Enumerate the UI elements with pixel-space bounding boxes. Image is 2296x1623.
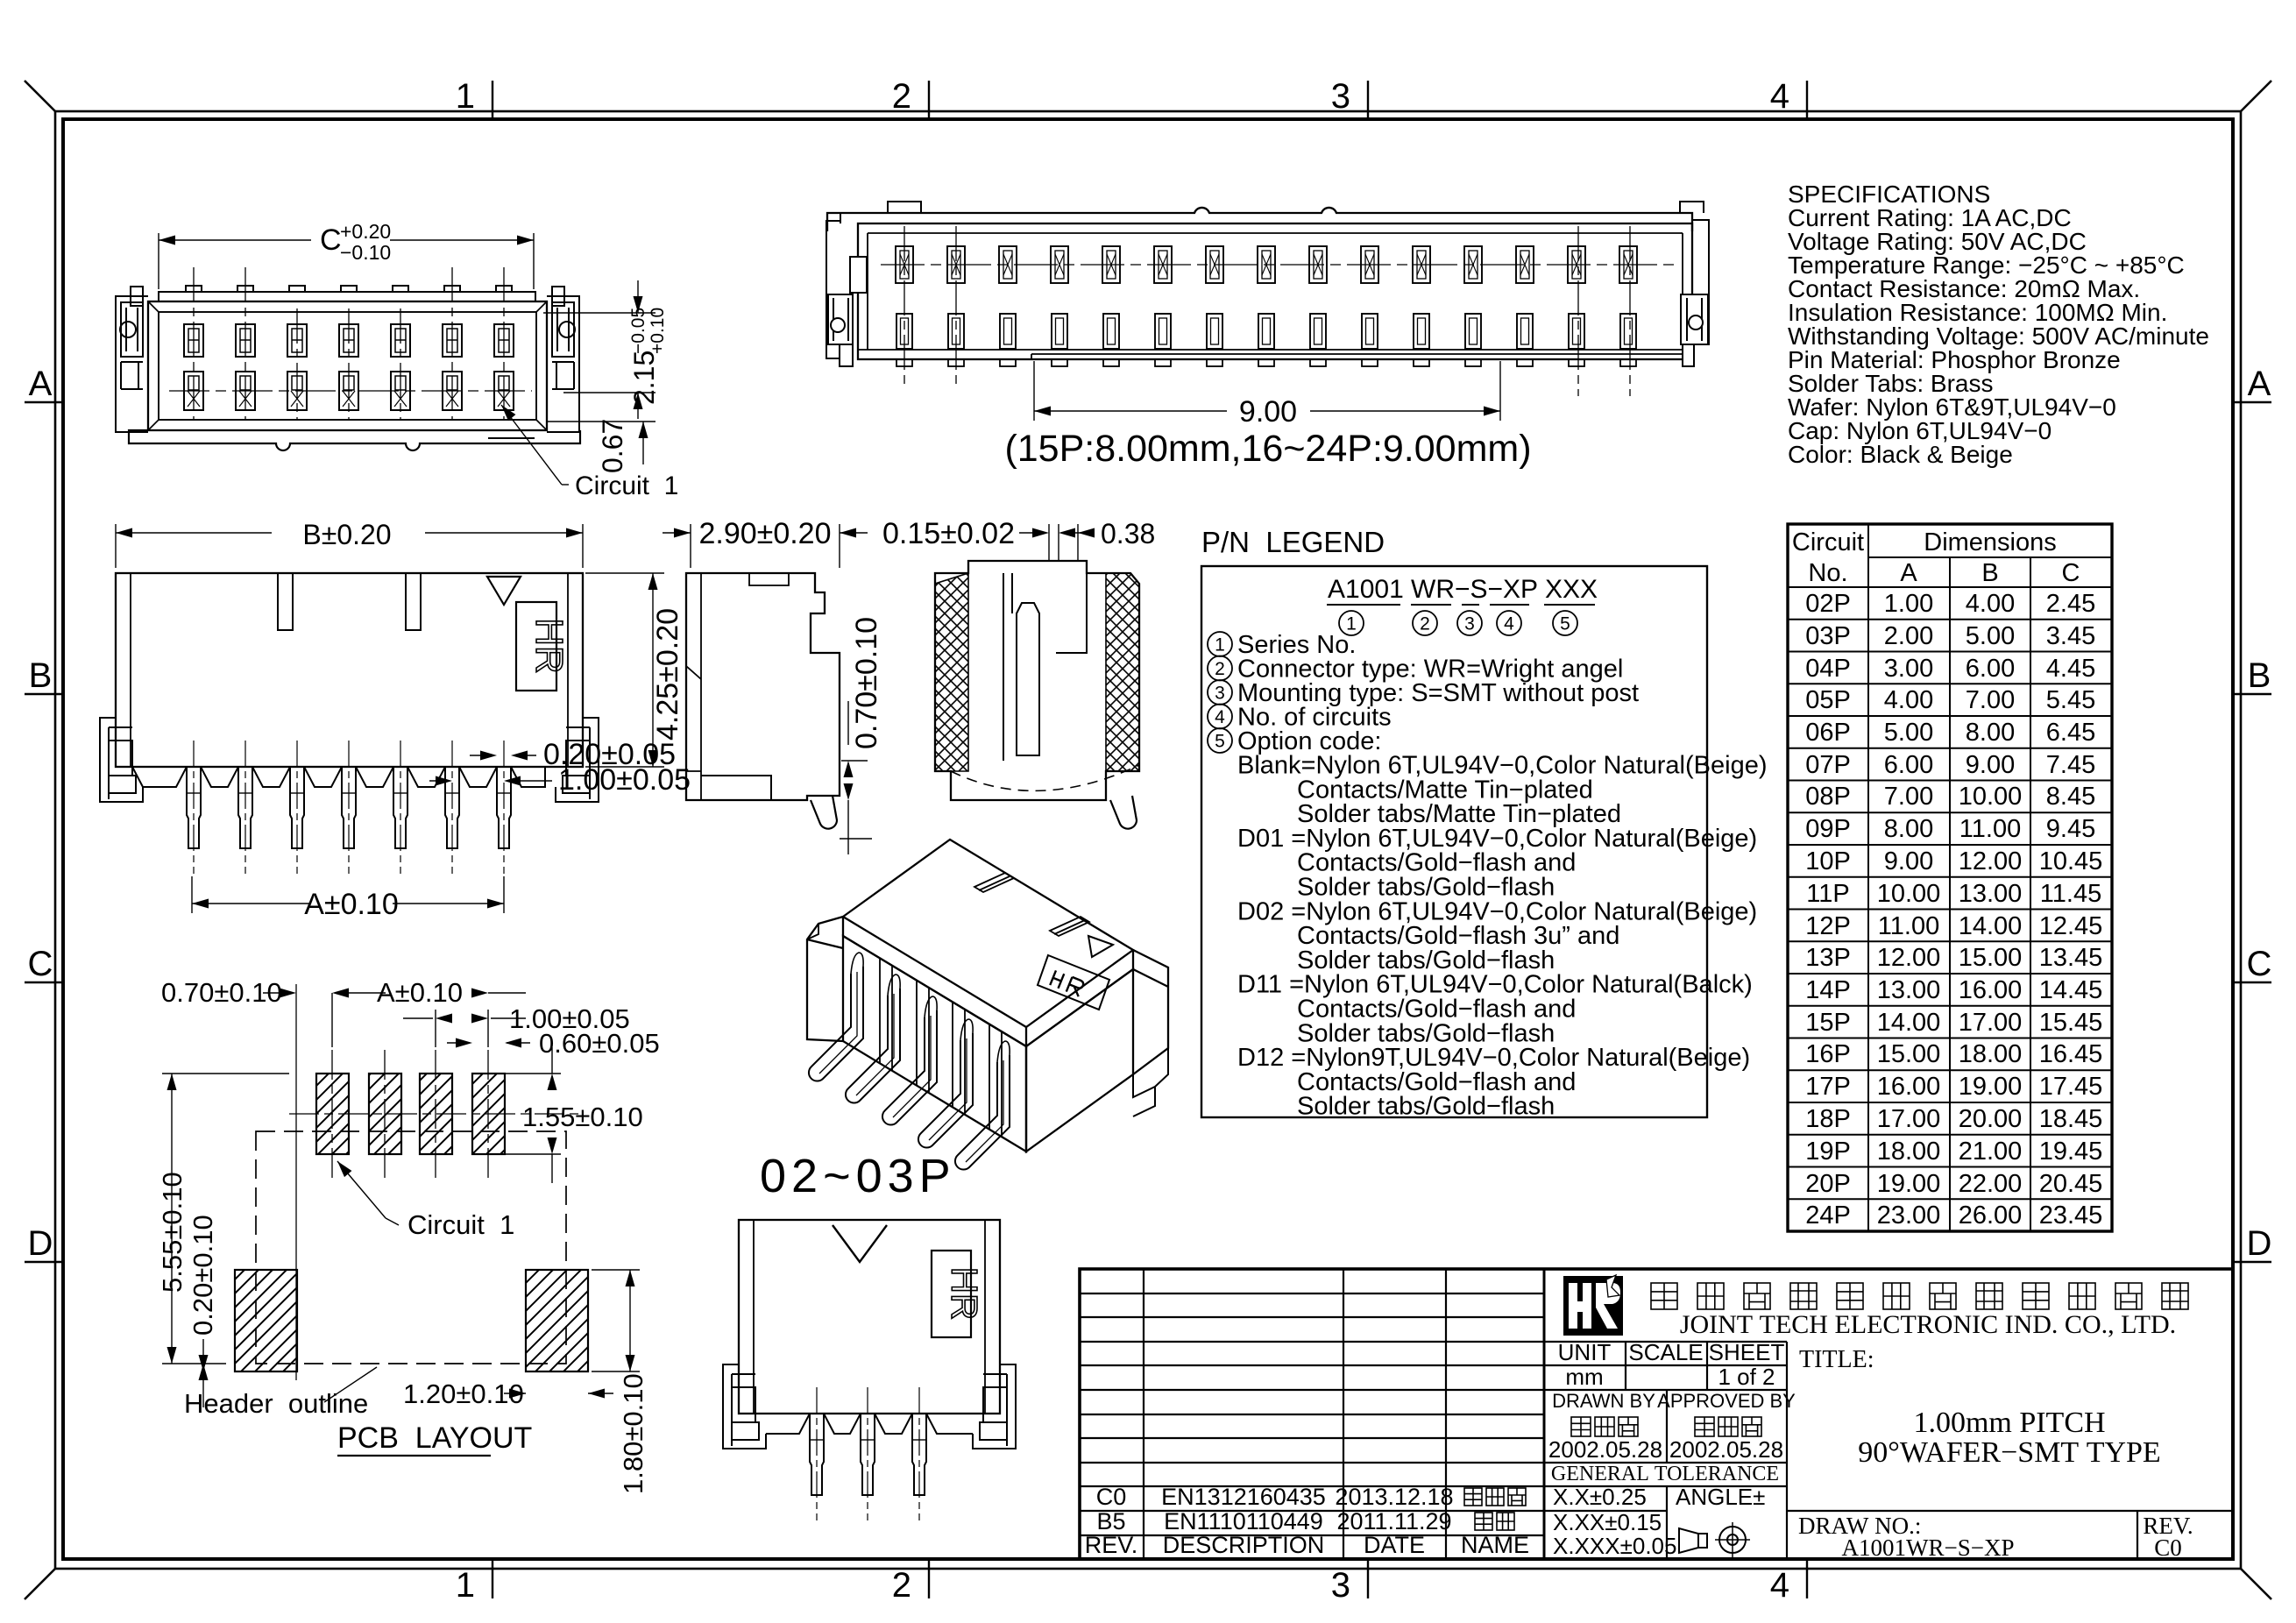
svg-text:1: 1 — [1215, 635, 1225, 656]
svg-text:26.00: 26.00 — [1959, 1201, 2023, 1230]
svg-text:13P: 13P — [1805, 944, 1851, 972]
svg-text:SHEET: SHEET — [1709, 1339, 1785, 1365]
svg-text:23.45: 23.45 — [2039, 1201, 2103, 1230]
svg-text:DRAWN BY: DRAWN BY — [1552, 1390, 1655, 1412]
svg-text:−0.05: −0.05 — [628, 308, 648, 354]
svg-text:05P: 05P — [1805, 686, 1851, 714]
svg-text:24P: 24P — [1805, 1201, 1851, 1230]
svg-text:Circuit 1: Circuit 1 — [407, 1209, 514, 1240]
svg-text:19.00: 19.00 — [1877, 1170, 1941, 1198]
svg-text:19.00: 19.00 — [1959, 1073, 2023, 1101]
svg-text:2.00: 2.00 — [1884, 622, 1933, 650]
svg-text:EN1110110449: EN1110110449 — [1164, 1508, 1323, 1534]
svg-text:15P: 15P — [1805, 1009, 1851, 1037]
svg-text:A1001WR−S−XP: A1001WR−S−XP — [1842, 1534, 2015, 1561]
svg-text:1.80±0.10: 1.80±0.10 — [618, 1373, 648, 1494]
svg-text:9.00: 9.00 — [1884, 847, 1933, 875]
svg-text:1.55±0.10: 1.55±0.10 — [522, 1102, 643, 1132]
svg-text:10.00: 10.00 — [1959, 783, 2023, 811]
svg-text:20.45: 20.45 — [2039, 1170, 2103, 1198]
svg-text:0.15±0.02: 0.15±0.02 — [882, 517, 1015, 550]
svg-text:12P: 12P — [1805, 912, 1851, 940]
svg-text:17P: 17P — [1805, 1073, 1851, 1101]
svg-text:3: 3 — [1215, 684, 1225, 704]
svg-text:C: C — [2062, 559, 2080, 587]
svg-text:6.00: 6.00 — [1884, 751, 1933, 779]
svg-text:A: A — [29, 365, 53, 403]
svg-text:Circuit: Circuit — [1792, 528, 1864, 556]
svg-text:10.45: 10.45 — [2039, 847, 2103, 875]
svg-text:(15P:8.00mm,16~24P:9.00mm): (15P:8.00mm,16~24P:9.00mm) — [1004, 428, 1531, 470]
svg-text:2: 2 — [892, 1566, 911, 1605]
svg-text:PCB LAYOUT: PCB LAYOUT — [337, 1421, 532, 1455]
svg-text:90°WAFER−SMT TYPE: 90°WAFER−SMT TYPE — [1858, 1436, 2160, 1469]
svg-text:14P: 14P — [1805, 976, 1851, 1004]
svg-text:3: 3 — [1464, 614, 1475, 634]
svg-text:1.00±0.05: 1.00±0.05 — [558, 763, 691, 797]
svg-text:3.00: 3.00 — [1884, 655, 1933, 683]
svg-text:11P: 11P — [1806, 880, 1849, 908]
svg-text:12.45: 12.45 — [2039, 912, 2103, 940]
svg-text:C0: C0 — [2154, 1534, 2182, 1561]
svg-text:13.45: 13.45 — [2039, 944, 2103, 972]
svg-text:Dimensions: Dimensions — [1924, 528, 2057, 556]
svg-text:9.00: 9.00 — [1239, 395, 1297, 429]
svg-text:10P: 10P — [1805, 847, 1851, 875]
svg-text:P/N LEGEND: P/N LEGEND — [1201, 526, 1385, 558]
svg-text:APPROVED BY: APPROVED BY — [1657, 1390, 1796, 1412]
svg-text:20.00: 20.00 — [1959, 1105, 2023, 1133]
svg-text:13.00: 13.00 — [1959, 880, 2023, 908]
svg-text:15.45: 15.45 — [2039, 1009, 2103, 1037]
svg-text:EN1312160435: EN1312160435 — [1161, 1484, 1326, 1510]
svg-text:D: D — [2247, 1224, 2272, 1263]
svg-text:1: 1 — [456, 77, 475, 116]
svg-text:2: 2 — [892, 77, 911, 116]
svg-text:1 of 2: 1 of 2 — [1718, 1364, 1775, 1390]
svg-text:1.00: 1.00 — [1884, 590, 1933, 618]
svg-text:16.00: 16.00 — [1877, 1073, 1941, 1101]
svg-text:C: C — [2247, 945, 2272, 983]
svg-text:4.00: 4.00 — [1884, 686, 1933, 714]
svg-text:23.00: 23.00 — [1877, 1201, 1941, 1230]
svg-text:16P: 16P — [1805, 1040, 1851, 1068]
svg-text:TITLE:: TITLE: — [1799, 1346, 1874, 1373]
svg-text:4.25±0.20: 4.25±0.20 — [651, 608, 684, 741]
svg-text:2002.05.28: 2002.05.28 — [1548, 1436, 1662, 1463]
svg-text:10.00: 10.00 — [1877, 880, 1941, 908]
svg-text:18.00: 18.00 — [1959, 1040, 2023, 1068]
svg-text:No.: No. — [1808, 559, 1847, 587]
svg-text:3: 3 — [1331, 1566, 1350, 1605]
svg-text:02~03P: 02~03P — [760, 1150, 956, 1202]
svg-text:5.00: 5.00 — [1884, 719, 1933, 747]
svg-text:3: 3 — [1331, 77, 1350, 116]
svg-text:5: 5 — [1215, 732, 1225, 752]
svg-text:D: D — [28, 1224, 53, 1263]
svg-text:Header outline: Header outline — [184, 1388, 368, 1419]
svg-text:UNIT: UNIT — [1558, 1339, 1612, 1365]
svg-text:4: 4 — [1770, 77, 1789, 116]
svg-text:11.45: 11.45 — [2040, 880, 2101, 908]
svg-text:07P: 07P — [1805, 751, 1851, 779]
svg-text:JOINT TECH ELECTRONIC IND. CO.: JOINT TECH ELECTRONIC IND. CO., LTD. — [1680, 1310, 2176, 1339]
svg-text:X.XXX±0.05: X.XXX±0.05 — [1553, 1533, 1676, 1559]
svg-text:WR−S−XP: WR−S−XP — [1411, 575, 1538, 604]
svg-text:A: A — [2248, 365, 2271, 403]
svg-text:B5: B5 — [1096, 1508, 1125, 1534]
svg-text:5.45: 5.45 — [2046, 686, 2095, 714]
svg-text:DATE: DATE — [1364, 1532, 1425, 1558]
svg-text:9.00: 9.00 — [1966, 751, 2015, 779]
svg-text:+0.20: +0.20 — [340, 220, 391, 243]
svg-text:5.55±0.10: 5.55±0.10 — [157, 1172, 188, 1293]
svg-text:7.45: 7.45 — [2046, 751, 2095, 779]
svg-text:0.70±0.10: 0.70±0.10 — [850, 617, 883, 749]
svg-text:2011.11.29: 2011.11.29 — [1336, 1508, 1451, 1534]
svg-text:03P: 03P — [1805, 622, 1851, 650]
svg-text:8.00: 8.00 — [1884, 815, 1933, 843]
svg-text:17.00: 17.00 — [1959, 1009, 2023, 1037]
svg-text:A±0.10: A±0.10 — [304, 888, 399, 921]
svg-text:6.00: 6.00 — [1966, 655, 2015, 683]
svg-text:16.45: 16.45 — [2039, 1040, 2103, 1068]
svg-text:15.00: 15.00 — [1877, 1040, 1941, 1068]
svg-text:REV.: REV. — [1085, 1532, 1138, 1558]
svg-text:11.00: 11.00 — [1878, 912, 1939, 940]
svg-text:C: C — [320, 223, 342, 257]
svg-text:A1001: A1001 — [1328, 575, 1404, 604]
svg-text:X.XX±0.15: X.XX±0.15 — [1553, 1509, 1662, 1535]
svg-text:2002.05.28: 2002.05.28 — [1669, 1436, 1783, 1463]
svg-text:17.45: 17.45 — [2039, 1073, 2103, 1101]
svg-text:17.00: 17.00 — [1877, 1105, 1941, 1133]
svg-text:−0.10: −0.10 — [340, 241, 391, 264]
svg-text:6.45: 6.45 — [2046, 719, 2095, 747]
svg-text:04P: 04P — [1805, 655, 1851, 683]
svg-text:12.00: 12.00 — [1959, 847, 2023, 875]
svg-text:Circuit 1: Circuit 1 — [575, 471, 678, 500]
svg-text:4.00: 4.00 — [1966, 590, 2015, 618]
svg-text:19P: 19P — [1805, 1138, 1851, 1166]
svg-text:GENERAL TOLERANCE: GENERAL TOLERANCE — [1551, 1463, 1779, 1485]
svg-text:12.00: 12.00 — [1877, 944, 1941, 972]
svg-text:1: 1 — [456, 1566, 475, 1605]
svg-text:14.00: 14.00 — [1959, 912, 2023, 940]
svg-text:A: A — [1900, 559, 1917, 587]
svg-text:21.00: 21.00 — [1959, 1138, 2023, 1166]
svg-text:7.00: 7.00 — [1966, 686, 2015, 714]
svg-text:B: B — [2248, 656, 2271, 695]
svg-text:7.00: 7.00 — [1884, 783, 1933, 811]
svg-text:09P: 09P — [1805, 815, 1851, 843]
svg-text:5.00: 5.00 — [1966, 622, 2015, 650]
svg-text:2: 2 — [1420, 614, 1430, 634]
svg-text:4: 4 — [1504, 614, 1514, 634]
svg-text:2013.12.18: 2013.12.18 — [1335, 1484, 1453, 1510]
svg-text:0.38: 0.38 — [1101, 518, 1155, 549]
svg-text:4.45: 4.45 — [2046, 655, 2095, 683]
svg-text:DESCRIPTION: DESCRIPTION — [1163, 1532, 1325, 1558]
svg-text:14.45: 14.45 — [2039, 976, 2103, 1004]
svg-text:Solder tabs/Gold−flash: Solder tabs/Gold−flash — [1297, 1093, 1555, 1121]
svg-text:NAME: NAME — [1461, 1532, 1529, 1558]
svg-text:22.00: 22.00 — [1959, 1170, 2023, 1198]
svg-text:16.00: 16.00 — [1959, 976, 2023, 1004]
svg-text:HR: HR — [528, 618, 570, 674]
svg-text:0.67: 0.67 — [597, 419, 628, 473]
svg-text:18P: 18P — [1805, 1105, 1851, 1133]
svg-text:+0.10: +0.10 — [648, 308, 668, 354]
svg-text:B±0.20: B±0.20 — [302, 519, 391, 550]
svg-text:1.00mm PITCH: 1.00mm PITCH — [1913, 1407, 2105, 1439]
svg-text:20P: 20P — [1805, 1170, 1851, 1198]
svg-text:mm: mm — [1565, 1364, 1603, 1390]
svg-text:13.00: 13.00 — [1877, 976, 1941, 1004]
svg-text:SCALE: SCALE — [1628, 1339, 1703, 1365]
svg-text:2: 2 — [1215, 659, 1225, 679]
svg-text:0.60±0.05: 0.60±0.05 — [539, 1028, 660, 1059]
svg-text:08P: 08P — [1805, 783, 1851, 811]
svg-text:Color: Black & Beige: Color: Black & Beige — [1788, 441, 2013, 468]
svg-text:2.45: 2.45 — [2046, 590, 2095, 618]
svg-text:8.00: 8.00 — [1966, 719, 2015, 747]
svg-text:8.45: 8.45 — [2046, 783, 2095, 811]
svg-text:0.20±0.10: 0.20±0.10 — [188, 1215, 218, 1336]
svg-text:X.X±0.25: X.X±0.25 — [1553, 1484, 1647, 1510]
svg-text:06P: 06P — [1805, 719, 1851, 747]
svg-text:ANGLE±: ANGLE± — [1676, 1484, 1765, 1510]
svg-text:HR: HR — [944, 1267, 985, 1321]
svg-text:1.20±0.10: 1.20±0.10 — [403, 1378, 524, 1409]
svg-text:4: 4 — [1215, 707, 1225, 727]
svg-text:B: B — [29, 656, 53, 695]
svg-text:C0: C0 — [1096, 1484, 1127, 1510]
svg-text:9.45: 9.45 — [2046, 815, 2095, 843]
svg-text:11.00: 11.00 — [1959, 815, 2021, 843]
svg-text:0.70±0.10: 0.70±0.10 — [161, 977, 282, 1008]
svg-text:15.00: 15.00 — [1959, 944, 2023, 972]
svg-text:02P: 02P — [1805, 590, 1851, 618]
svg-text:2.15: 2.15 — [628, 351, 660, 405]
svg-text:XXX: XXX — [1545, 575, 1598, 604]
svg-text:C: C — [28, 945, 53, 983]
svg-text:14.00: 14.00 — [1877, 1009, 1941, 1037]
svg-text:2.90±0.20: 2.90±0.20 — [698, 517, 831, 550]
svg-text:5: 5 — [1560, 614, 1570, 634]
svg-text:18.45: 18.45 — [2039, 1105, 2103, 1133]
svg-text:4: 4 — [1770, 1566, 1789, 1605]
svg-text:18.00: 18.00 — [1877, 1138, 1941, 1166]
svg-text:B: B — [1981, 559, 1998, 587]
svg-text:A±0.10: A±0.10 — [377, 977, 463, 1008]
svg-text:19.45: 19.45 — [2039, 1138, 2103, 1166]
svg-text:3.45: 3.45 — [2046, 622, 2095, 650]
